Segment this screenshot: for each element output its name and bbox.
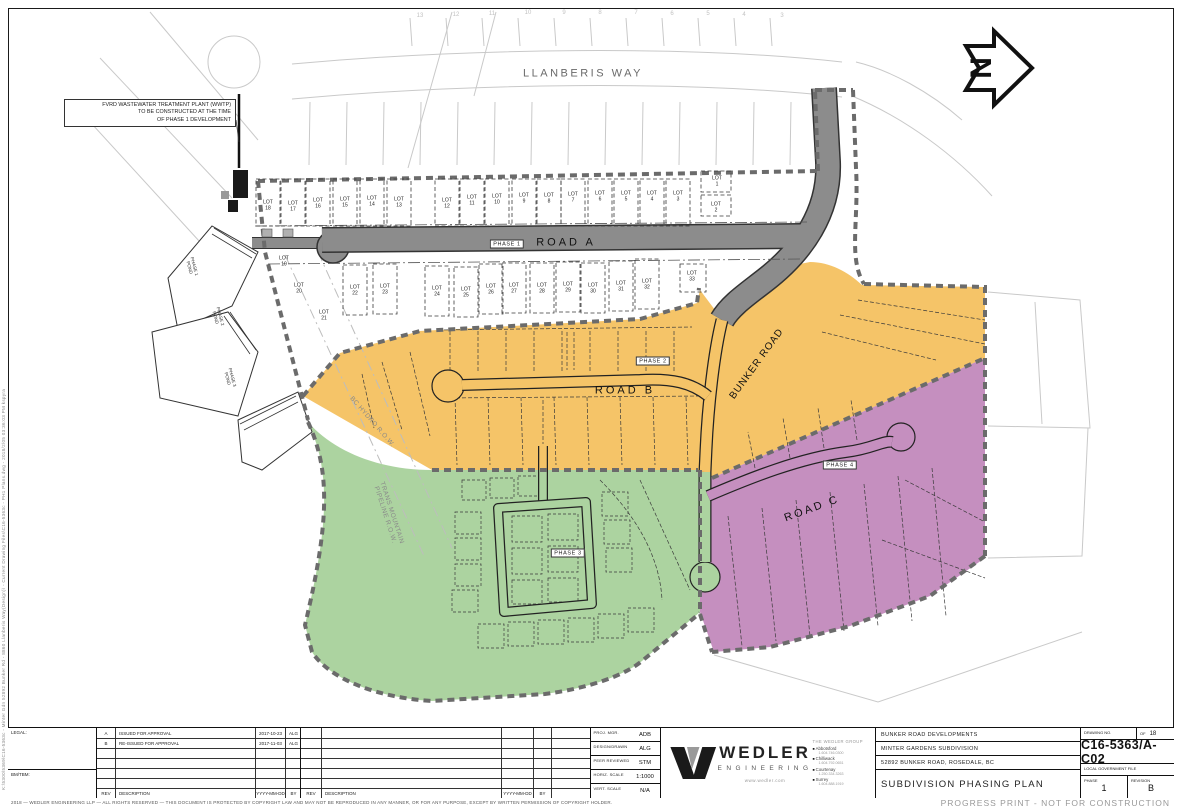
- drawing-number-block: DRAWING NO. OF 18 C16-5363/A-C02 LOCAL G…: [1080, 728, 1174, 798]
- rev-header-cell: DESCRIPTION: [321, 788, 501, 798]
- rev-cell: [115, 758, 255, 768]
- brand-name: WEDLER: [718, 743, 813, 763]
- rev-cell: [533, 748, 551, 758]
- sheet-count: 18: [1150, 731, 1157, 737]
- staff-row: HORIZ. SCALE1:1000: [591, 770, 660, 784]
- rev-cell: [301, 748, 321, 758]
- rev-cell: [255, 748, 285, 758]
- rev-cell: ALG: [285, 738, 301, 748]
- rev-cell: [285, 758, 301, 768]
- phase-value: 1: [1081, 783, 1127, 793]
- office-item: ■ Surrey1.604.888.1919: [813, 777, 872, 786]
- local-government-file-label: LOCAL GOVERNMENT FILE: [1081, 764, 1174, 776]
- rev-cell: A: [97, 728, 115, 738]
- rev-cell: [501, 778, 533, 788]
- subdivision-name: MINTER GARDENS SUBDIVISION: [876, 742, 1080, 756]
- rev-cell: [501, 758, 533, 768]
- rev-cell: [97, 768, 115, 778]
- rev-header-cell: REV: [97, 788, 115, 798]
- rev-cell: ISSUED FOR APPROVAL: [115, 728, 255, 738]
- rev-cell: [551, 768, 591, 778]
- rev-cell: [255, 758, 285, 768]
- rev-cell: [285, 768, 301, 778]
- staff-row: DESIGN/DRAWNALG: [591, 742, 660, 756]
- rev-header-cell: YYYY-MM-DD: [255, 788, 285, 798]
- rev-cell: [301, 738, 321, 748]
- rev-cell: [551, 778, 591, 788]
- phase-tag: PHASE 2: [636, 357, 670, 366]
- brand-sub: ENGINEERING: [718, 765, 813, 772]
- rev-cell: B: [97, 738, 115, 748]
- rev-cell: [97, 748, 115, 758]
- rev-cell: [533, 758, 551, 768]
- client-name: BUNKER ROAD DEVELOPMENTS: [876, 728, 1080, 742]
- staff-row: VERT. SCALEN/A: [591, 784, 660, 798]
- revision-cell: REVISION B: [1127, 776, 1174, 798]
- rev-cell: [533, 738, 551, 748]
- rev-header-cell: REV: [301, 788, 321, 798]
- rev-cell: [321, 778, 501, 788]
- rev-cell: [115, 778, 255, 788]
- revision-table-2: REVDESCRIPTIONYYYY-MM-DDBY: [300, 728, 590, 798]
- rev-cell: [321, 768, 501, 778]
- brand-block: WEDLER ENGINEERING www.wedler.com THE WE…: [660, 728, 875, 798]
- rev-cell: [285, 748, 301, 758]
- rev-header-cell: YYYY-MM-DD: [501, 788, 533, 798]
- rev-cell: ALG: [285, 728, 301, 738]
- office-bullet-icon: ■: [813, 768, 816, 772]
- rev-cell: [551, 738, 591, 748]
- office-item: ■ Chilliwack1.604.792.0651: [813, 756, 872, 765]
- rev-header-cell: BY: [285, 788, 301, 798]
- phase-cell: PHASE 1: [1081, 776, 1127, 798]
- rev-cell: [285, 778, 301, 788]
- rev-cell: [501, 728, 533, 738]
- rev-cell: [255, 768, 285, 778]
- office-item: ■ Abbotsford1.604.746.0300: [813, 746, 872, 755]
- phase-tag: PHASE 3: [551, 549, 585, 558]
- rev-cell: [533, 728, 551, 738]
- rev-cell: [97, 778, 115, 788]
- title-block: LEGAL: BM/TBM: AISSUED FOR APPROVAL2017-…: [8, 727, 1174, 797]
- rev-header-cell: BY: [533, 788, 551, 798]
- rev-cell: [115, 768, 255, 778]
- site-address: 52892 BUNKER ROAD, ROSEDALE, BC: [876, 756, 1080, 770]
- project-block: BUNKER ROAD DEVELOPMENTS MINTER GARDENS …: [875, 728, 1080, 798]
- rev-cell: [321, 758, 501, 768]
- phase-tag: PHASE 1: [490, 240, 524, 249]
- office-item: ■ Courtenay1.250.334.3263: [813, 767, 872, 776]
- rev-header-cell: DESCRIPTION: [115, 788, 255, 798]
- rev-cell: 2017-10-23: [255, 728, 285, 738]
- revision-table-1: AISSUED FOR APPROVAL2017-10-23ALGBRE-ISS…: [96, 728, 300, 798]
- rev-cell: [301, 728, 321, 738]
- wedler-logo: [669, 740, 718, 786]
- rev-header-cell: [551, 788, 591, 798]
- staff-row: PEER REVIEWEDSTM: [591, 756, 660, 770]
- office-bullet-icon: ■: [813, 778, 816, 782]
- legal-box: LEGAL:: [8, 728, 96, 770]
- rev-cell: [321, 728, 501, 738]
- rev-cell: [97, 758, 115, 768]
- brand-url[interactable]: www.wedler.com: [718, 778, 813, 783]
- rev-cell: [255, 778, 285, 788]
- rev-cell: [533, 768, 551, 778]
- rev-cell: [301, 778, 321, 788]
- plot-file-path: K:\5300\5369\C16-5363c - Minter Gdn 5289…: [1, 389, 6, 790]
- benchmark-box: BM/TBM:: [8, 770, 96, 798]
- rev-cell: [321, 748, 501, 758]
- office-bullet-icon: ■: [813, 757, 816, 761]
- revision-value: B: [1128, 783, 1174, 793]
- rev-cell: [301, 758, 321, 768]
- copyright-note: 2018 — WEDLER ENGINEERING LLP — ALL RIGH…: [11, 800, 612, 805]
- rev-cell: [551, 758, 591, 768]
- drawing-number: C16-5363/A-C02: [1081, 740, 1174, 764]
- rev-cell: 2017-11-03: [255, 738, 285, 748]
- rev-cell: [533, 778, 551, 788]
- rev-cell: [501, 748, 533, 758]
- rev-cell: [501, 738, 533, 748]
- progress-print-note: PROGRESS PRINT - NOT FOR CONSTRUCTION: [941, 798, 1170, 808]
- staff-block: PROJ. MGR.ADBDESIGN/DRAWNALGPEER REVIEWE…: [590, 728, 660, 798]
- of-label: OF: [1140, 731, 1146, 736]
- office-bullet-icon: ■: [813, 747, 816, 751]
- staff-row: PROJ. MGR.ADB: [591, 728, 660, 742]
- rev-cell: [501, 768, 533, 778]
- rev-cell: [551, 728, 591, 738]
- phase-tag: PHASE 4: [823, 461, 857, 470]
- office-list: THE WEDLER GROUP ■ Abbotsford1.604.746.0…: [813, 739, 875, 788]
- rev-cell: [321, 738, 501, 748]
- rev-cell: RE-ISSUED FOR APPROVAL: [115, 738, 255, 748]
- sheet-title: SUBDIVISION PHASING PLAN: [876, 770, 1080, 798]
- rev-cell: [551, 748, 591, 758]
- drawing-sheet: N FVRD WASTEWATER TREATMENT PLANT (WWTP)…: [0, 0, 1184, 812]
- sheet-border: [8, 8, 1174, 797]
- rev-cell: [301, 768, 321, 778]
- rev-cell: [115, 748, 255, 758]
